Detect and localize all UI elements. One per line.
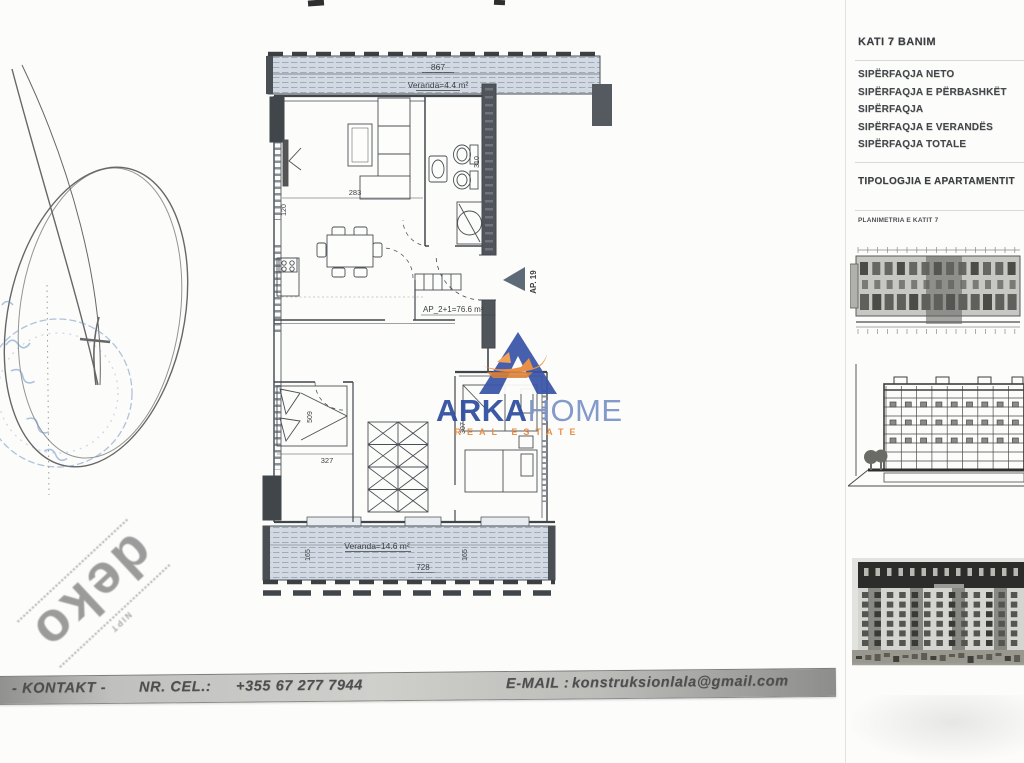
arkahome-logo: ARKAHOME REAL ESTATE — [436, 332, 600, 444]
veranda-top-label: Veranda=4.4 m² — [408, 80, 469, 90]
email-label: E-MAIL : — [506, 675, 569, 692]
building-photo — [848, 540, 1024, 710]
veranda-bottom-label: Veranda=14.6 m² — [344, 541, 410, 551]
arkahome-logo-icon — [463, 332, 573, 396]
dining-table-icon — [317, 227, 382, 277]
dim-veranda-depth: 165 — [305, 549, 312, 561]
rule-line — [855, 162, 1024, 163]
scanned-floorplan-page: 867 Veranda=4.4 m² — [0, 0, 1024, 763]
dim-living-width: 283 — [349, 188, 362, 197]
panel-separator — [845, 0, 846, 763]
kitchen-counter-icon — [277, 258, 299, 296]
apartment-area-label: AP_2+1=76.6 m² — [423, 305, 484, 314]
scan-smudge — [846, 695, 1024, 763]
dim-bed-width: 327 — [321, 456, 334, 465]
tv-icon — [283, 140, 288, 186]
rule-line — [855, 210, 1024, 211]
area-rows: SIPËRFAQJA NETO SIPËRFAQJA E PËRBASHKËT … — [858, 66, 1007, 154]
pencil-oval-sketch — [0, 65, 214, 495]
hand-drawn-sketch — [0, 55, 220, 505]
coffee-table-icon — [348, 124, 372, 166]
building-elevation-drawing — [848, 356, 1024, 498]
entrance-arrow-icon — [503, 267, 525, 291]
scan-speck — [494, 0, 505, 5]
contact-bar: - KONTAKT - NR. CEL.: +355 67 277 7944 E… — [0, 668, 836, 705]
area-row: SIPËRFAQJA — [858, 101, 1007, 119]
phone-number: +355 67 277 7944 — [236, 677, 363, 694]
stamp-rule — [60, 564, 171, 668]
hall-shelf-icon — [415, 274, 461, 290]
stamp-small-text: NIPT — [108, 610, 133, 634]
wardrobe-icon — [368, 422, 428, 512]
stamp-rule — [17, 519, 128, 623]
blue-stamp — [0, 302, 132, 468]
bidet-icon — [454, 171, 479, 189]
veranda-bottom: Veranda=14.6 m² 728 165 165 — [263, 526, 555, 593]
apartment-floor-plan: 867 Veranda=4.4 m² — [255, 40, 613, 600]
stamp-wordmark: deko — [23, 525, 164, 662]
single-bed-icon — [465, 450, 537, 492]
apartment-id-marker: AP. 19 — [503, 267, 538, 294]
area-row: SIPËRFAQJA E VERANDËS — [858, 119, 1007, 137]
dim-bed-depth: 509 — [307, 411, 314, 423]
veranda-top: 867 Veranda=4.4 m² — [266, 54, 612, 126]
keyplan-strip-drawing — [850, 242, 1024, 337]
area-row: SIPËRFAQJA TOTALE — [858, 136, 1007, 154]
shower-icon — [457, 202, 482, 244]
dim-veranda-top: 867 — [431, 62, 445, 72]
kontakt-label: - KONTAKT - — [12, 680, 106, 697]
dim-bath-depth: 310 — [474, 156, 481, 168]
email-address: konstruksionlala@gmail.com — [572, 673, 789, 691]
dim-living-depth: 120 — [281, 204, 288, 216]
area-row: SIPËRFAQJA E PËRBASHKËT — [858, 84, 1007, 102]
dim-veranda-depth: 165 — [462, 549, 469, 561]
floor-title: KATI 7 BANIM — [858, 36, 936, 48]
area-row: SIPËRFAQJA NETO — [858, 66, 1007, 84]
logo-text-arka: ARKA — [436, 393, 528, 428]
cel-label: NR. CEL.: — [139, 679, 211, 696]
typology-title: TIPOLOGJIA E APARTAMENTIT — [858, 176, 1015, 187]
logo-text-home: HOME — [528, 393, 623, 428]
apartment-id-label: AP. 19 — [529, 270, 538, 294]
rule-line — [855, 60, 1024, 61]
dim-veranda-bottom: 728 — [416, 563, 430, 572]
logo-tagline: REAL ESTATE — [436, 427, 600, 437]
keyplan-title: PLANIMETRIA E KATIT 7 — [858, 217, 938, 224]
living-room-furniture — [283, 98, 410, 199]
highlighted-unit — [926, 256, 962, 324]
scan-speck — [308, 0, 324, 7]
